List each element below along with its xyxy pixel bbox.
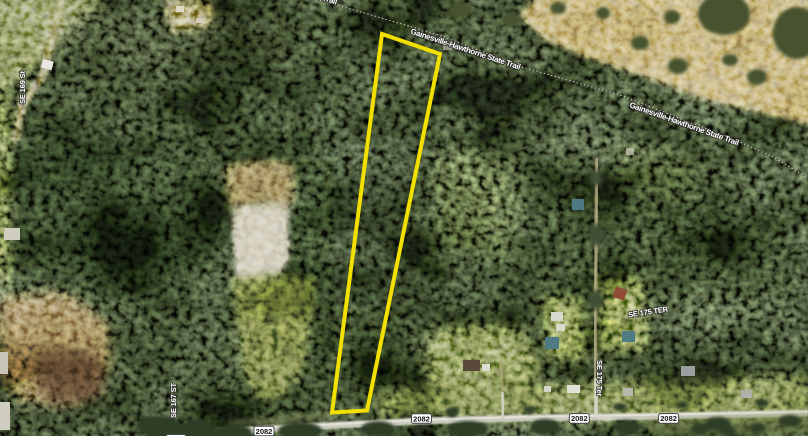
svg-text:2082: 2082 (413, 414, 430, 423)
svg-text:SE 169 St: SE 169 St (18, 71, 27, 104)
svg-text:2082: 2082 (571, 414, 588, 423)
svg-text:2082: 2082 (256, 427, 273, 436)
svg-text:Gainesville-Hawthorne State Tr: Gainesville-Hawthorne State Trail (628, 100, 740, 147)
svg-text:2082: 2082 (660, 414, 677, 423)
svg-text:SE 175 TER: SE 175 TER (627, 305, 669, 320)
svg-text:Gainesville-Hawthorne State Tr: Gainesville-Hawthorne State Trail (225, 0, 338, 6)
svg-text:SE 175 Ter: SE 175 Ter (595, 360, 604, 397)
svg-text:SE 167 ST: SE 167 ST (169, 383, 178, 418)
